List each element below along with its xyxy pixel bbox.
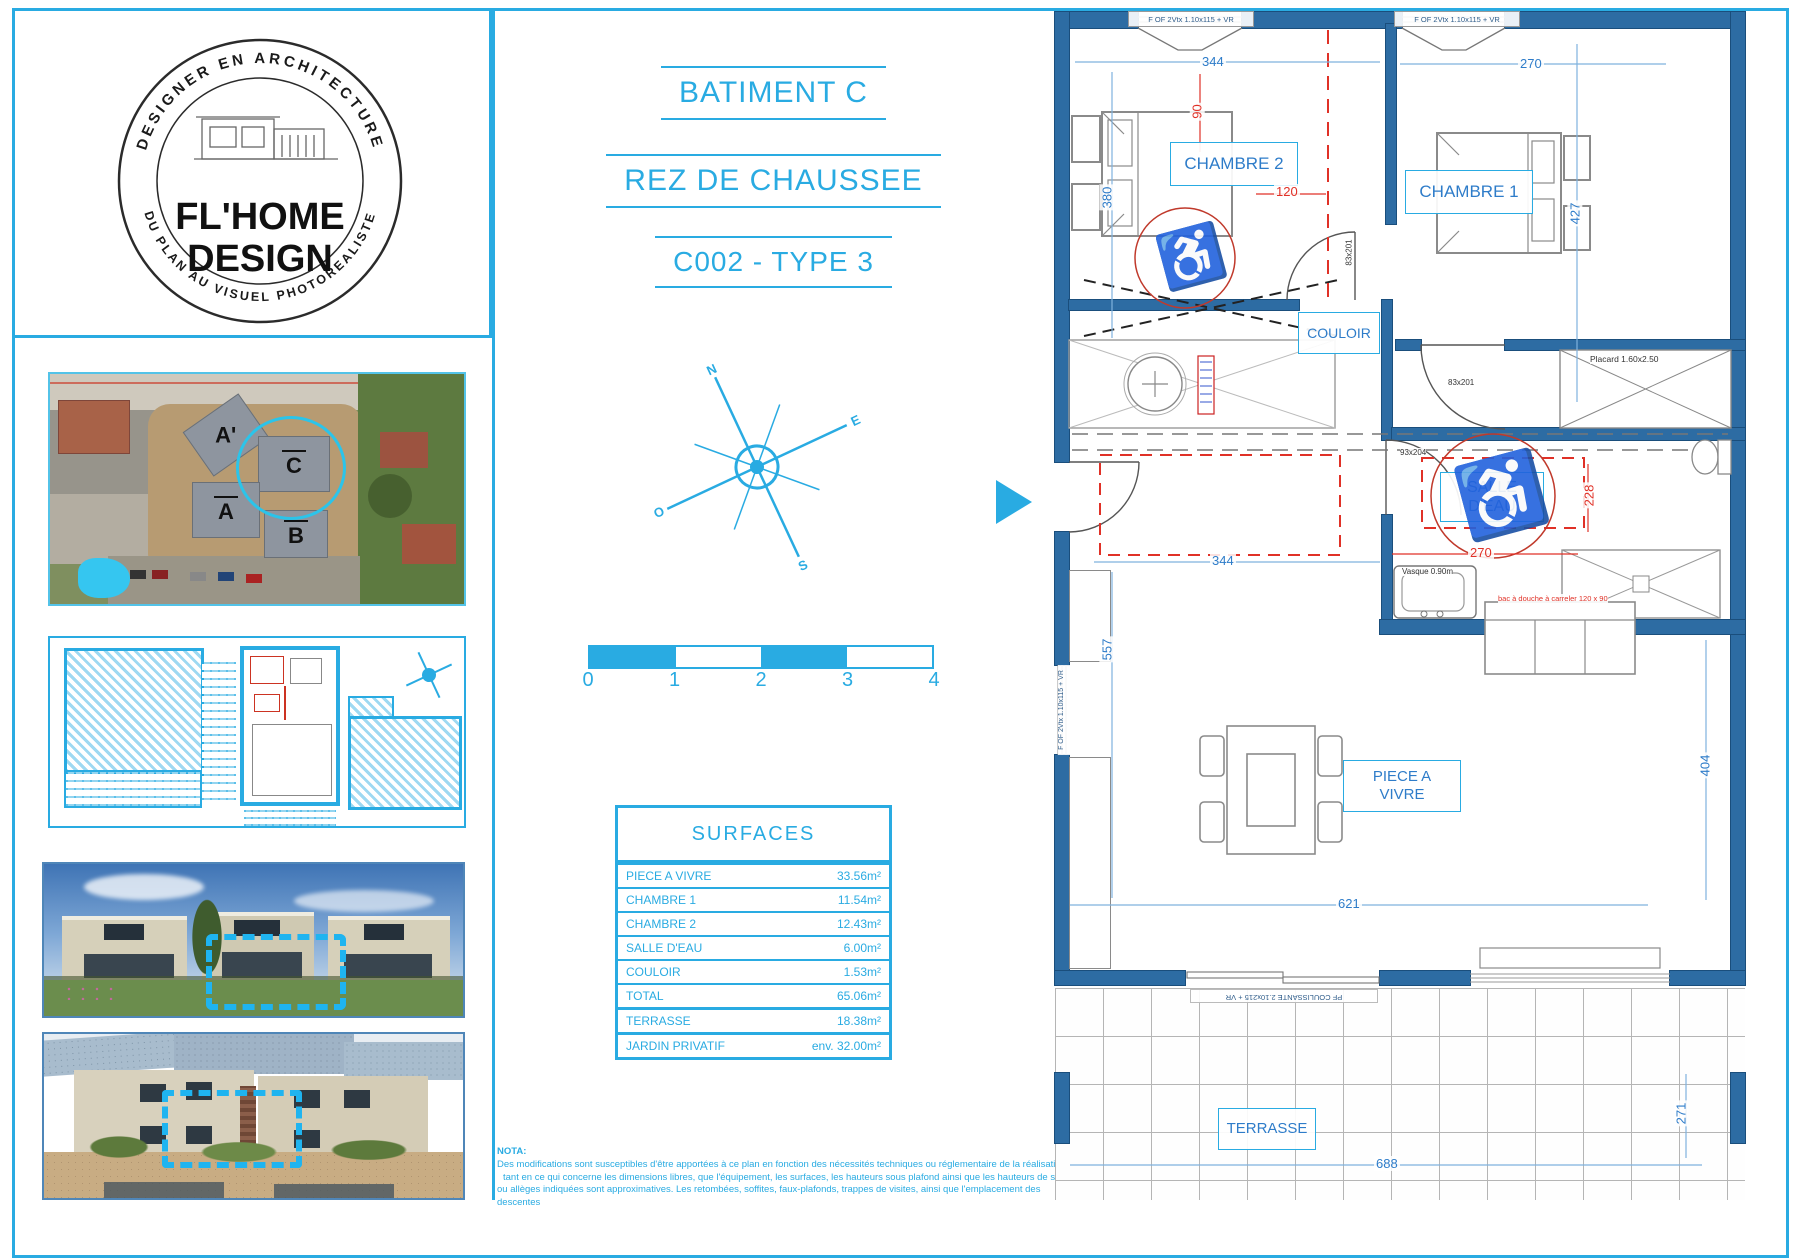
scale-tick-1: 1 xyxy=(669,669,680,692)
render2-bush3 xyxy=(324,1138,414,1162)
aerial-parking xyxy=(108,556,360,606)
dim-270-top: 270 xyxy=(1518,56,1544,71)
scale-seg-4 xyxy=(847,647,933,667)
logo-panel: DESIGNER EN ARCHITECTURE DU PLAN AU VISU… xyxy=(12,8,492,338)
compass-s: S xyxy=(796,557,810,574)
scale-seg-2 xyxy=(676,647,762,667)
plan-linework xyxy=(1050,10,1750,1200)
title-floor: REZ DE CHAUSSEE xyxy=(606,154,940,208)
row-label: CHAMBRE 2 xyxy=(626,917,696,931)
dim-427: 427 xyxy=(1567,201,1582,227)
dim-557: 557 xyxy=(1099,637,1114,663)
dim-621: 621 xyxy=(1336,896,1362,911)
row-value: 11.54m² xyxy=(838,893,881,907)
scale-seg-1 xyxy=(590,647,676,667)
row-value: env. 32.00m² xyxy=(812,1039,881,1053)
scale-tick-3: 3 xyxy=(842,669,853,692)
scale-seg-3 xyxy=(761,647,847,667)
aerial-car3 xyxy=(190,572,206,581)
surfaces-table: SURFACES PIECE A VIVRE33.56m² CHAMBRE 11… xyxy=(615,805,892,1060)
siteplan-room3 xyxy=(254,694,280,712)
dim-688: 688 xyxy=(1374,1156,1400,1171)
table-row: PIECE A VIVRE33.56m² xyxy=(618,863,889,887)
aerial-photo: A' C A B xyxy=(48,372,466,606)
dim-344-entry: 344 xyxy=(1210,553,1236,568)
render1-bay1 xyxy=(84,954,174,978)
surfaces-title: SURFACES xyxy=(618,808,889,863)
aerial-car4 xyxy=(218,572,234,581)
siteplan-room1 xyxy=(250,656,284,684)
door-size-label: 83x201 xyxy=(1345,239,1354,265)
table-row: JARDIN PRIVATIFenv. 32.00m² xyxy=(618,1032,889,1057)
nota-title: NOTA: xyxy=(497,1146,1082,1159)
compass-n: N xyxy=(704,361,719,379)
room-label-couloir: COULOIR xyxy=(1298,312,1380,354)
door-size-label: 83x201 xyxy=(1448,378,1474,387)
row-label: JARDIN PRIVATIF xyxy=(626,1039,725,1053)
title-building: BATIMENT C xyxy=(661,66,886,120)
row-label: SALLE D'EAU xyxy=(626,941,702,955)
nota-line3: ou allèges indiquées sont approximatives… xyxy=(497,1184,1082,1210)
plan-sheet: DESIGNER EN ARCHITECTURE DU PLAN AU VISU… xyxy=(0,0,1800,1200)
dim-228: 228 xyxy=(1581,483,1596,509)
aerial-label-b: B xyxy=(284,520,308,549)
room-label-terrasse: TERRASSE xyxy=(1218,1108,1316,1150)
nota-line2: tant en ce qui concerne les dimensions l… xyxy=(497,1172,1082,1185)
siteplan-right-stub xyxy=(348,696,394,718)
dim-271: 271 xyxy=(1673,1101,1688,1127)
render-rear-view xyxy=(42,1032,465,1200)
nota-line1: Des modifications sont susceptibles d'êt… xyxy=(497,1159,1082,1172)
aerial-label-a-prime: A' xyxy=(215,422,236,448)
row-value: 6.00m² xyxy=(844,941,881,955)
table-row: TERRASSE18.38m² xyxy=(618,1007,889,1032)
logo-stamp: DESIGNER EN ARCHITECTURE DU PLAN AU VISU… xyxy=(110,29,410,329)
window-label-left: F OF 2Vtx 1.10x115 + VR xyxy=(1058,665,1070,755)
scale-tick-0: 0 xyxy=(582,669,593,692)
render1-cloud2 xyxy=(294,890,434,912)
dim-120: 120 xyxy=(1274,184,1300,199)
table-row: TOTAL65.06m² xyxy=(618,983,889,1007)
siteplan-room2 xyxy=(290,658,322,684)
column-separator xyxy=(492,8,495,1200)
row-label: COULOIR xyxy=(626,965,681,979)
dim-380: 380 xyxy=(1099,185,1114,211)
siteplan-living xyxy=(252,724,332,796)
vasque-label: Vasque 0.90m xyxy=(1402,567,1453,576)
aerial-cyan-blob xyxy=(78,558,130,598)
render1-flowers xyxy=(62,984,122,1000)
render2-roof-right xyxy=(344,1042,465,1080)
aerial-tree-blob xyxy=(368,474,412,518)
scale-tick-4: 4 xyxy=(928,669,939,692)
sliding-door-label: PF COULISSANTE 2.10x215 + VR xyxy=(1190,989,1378,1003)
row-value: 18.38m² xyxy=(837,1014,881,1028)
row-value: 65.06m² xyxy=(837,989,881,1003)
aerial-house-right1 xyxy=(380,432,428,468)
siteplan-thumbnail xyxy=(48,636,466,828)
row-label: TERRASSE xyxy=(626,1014,691,1028)
row-value: 1.53m² xyxy=(844,965,881,979)
row-label: CHAMBRE 1 xyxy=(626,893,696,907)
render1-cloud1 xyxy=(84,874,204,900)
shower-label: bac à douche à carreler 120 x 90 xyxy=(1498,594,1608,603)
table-row: CHAMBRE 111.54m² xyxy=(618,887,889,911)
aerial-car1 xyxy=(130,570,146,579)
render1-bay3 xyxy=(344,954,432,978)
window-label-top-left: F OF 2Vtx 1.10x115 + VR xyxy=(1128,11,1254,27)
row-label: TOTAL xyxy=(626,989,664,1003)
render1-window1 xyxy=(104,924,144,940)
aerial-car2 xyxy=(152,570,168,579)
render2-rail1 xyxy=(104,1182,224,1200)
siteplan-center-terrace xyxy=(244,806,336,826)
door-size-label: 93x204 xyxy=(1400,448,1426,457)
render2-highlight-rect xyxy=(162,1090,302,1168)
siteplan-red-line xyxy=(284,686,286,720)
compass-rose: N E S O xyxy=(642,352,872,582)
aerial-red-roof-house xyxy=(58,400,130,454)
nota-note: NOTA: Des modifications sont susceptible… xyxy=(497,1146,1082,1210)
render-front-view xyxy=(42,862,465,1018)
table-row: COULOIR1.53m² xyxy=(618,959,889,983)
logo-name-line1: FL'HOME xyxy=(175,196,344,238)
floor-plan: F OF 2Vtx 1.10x115 + VR F OF 2Vtx 1.10x1… xyxy=(1050,10,1750,1200)
aerial-car5 xyxy=(246,574,262,583)
table-row: SALLE D'EAU6.00m² xyxy=(618,935,889,959)
aerial-house-right2 xyxy=(402,524,456,564)
dim-90: 90 xyxy=(1190,102,1205,120)
room-label-chambre1: CHAMBRE 1 xyxy=(1405,170,1533,214)
siteplan-left-terrace xyxy=(64,770,202,808)
room-label-chambre2: CHAMBRE 2 xyxy=(1170,142,1298,186)
aerial-highlight-ring xyxy=(236,416,346,520)
siteplan-left-unit xyxy=(64,648,204,776)
aerial-label-a: A xyxy=(214,496,238,525)
row-label: PIECE A VIVRE xyxy=(626,869,711,883)
render2-bush1 xyxy=(84,1134,154,1160)
render2-win6 xyxy=(344,1090,370,1108)
placard-label: Placard 1.60x2.50 xyxy=(1590,354,1659,364)
table-row: CHAMBRE 212.43m² xyxy=(618,911,889,935)
compass-o: O xyxy=(651,503,667,521)
logo-name-line2: DESIGN xyxy=(187,238,333,280)
room-label-piece-a-vivre: PIECE A VIVRE xyxy=(1343,760,1461,812)
scale-bar: 0 1 2 3 4 xyxy=(588,645,934,693)
row-value: 12.43m² xyxy=(837,917,881,931)
render2-roof-mid xyxy=(174,1034,354,1074)
render2-rail2 xyxy=(274,1184,394,1200)
window-label-top-right: F OF 2Vtx 1.10x115 + VR xyxy=(1394,11,1520,27)
siteplan-highlight-unit xyxy=(240,646,340,806)
siteplan-compass-icon xyxy=(402,648,456,702)
render1-highlight-rect xyxy=(206,934,346,1010)
dim-404: 404 xyxy=(1697,753,1712,779)
entrance-arrow-icon xyxy=(996,480,1032,524)
dim-344-top: 344 xyxy=(1200,54,1226,69)
siteplan-center-strip xyxy=(202,662,236,800)
render1-window3 xyxy=(364,924,404,940)
dim-270-bath: 270 xyxy=(1468,545,1494,560)
compass-e: E xyxy=(848,412,862,429)
siteplan-right-unit xyxy=(348,716,462,810)
row-value: 33.56m² xyxy=(837,869,881,883)
scale-tick-2: 2 xyxy=(755,669,766,692)
title-unit: C002 - TYPE 3 xyxy=(655,236,892,288)
